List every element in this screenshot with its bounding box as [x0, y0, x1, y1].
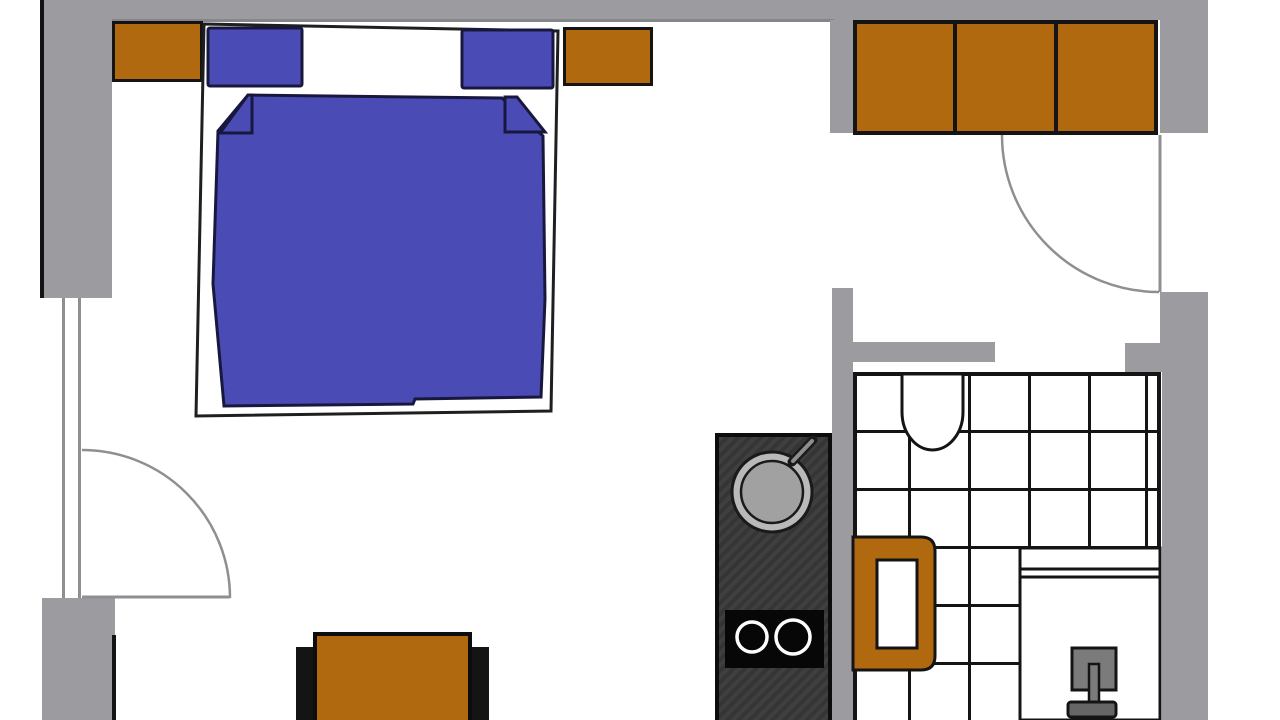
tile-line-horizontal — [857, 604, 1157, 607]
window-pane-line-inner — [78, 298, 81, 598]
cooktop — [725, 610, 824, 668]
tile-line-horizontal — [857, 488, 1157, 491]
window-pane-line-outer — [62, 298, 65, 598]
bathroom-wall-edge-top — [853, 372, 1160, 376]
pillow-left — [208, 28, 302, 86]
floor-plan — [0, 0, 1280, 720]
wall-right-upper — [1160, 0, 1208, 133]
wall-right-lower — [1160, 372, 1208, 720]
sofa-seat — [313, 632, 472, 720]
blanket-fold-left — [220, 95, 252, 133]
bathroom-wall-edge-right — [1157, 372, 1161, 548]
wall-bathroom-top — [832, 342, 995, 362]
wardrobe-door-3 — [1054, 24, 1154, 131]
wall-alcove-left — [830, 20, 853, 133]
bathroom-floor — [853, 372, 1162, 720]
door-swing-arc — [82, 450, 230, 598]
kitchen-counter — [715, 433, 832, 720]
tile-line-horizontal — [857, 662, 1157, 665]
wardrobe — [853, 20, 1158, 135]
wall-left-lower — [42, 598, 115, 720]
wardrobe-door-2 — [953, 24, 1053, 131]
wall-left-upper — [44, 0, 112, 298]
tile-line-horizontal — [857, 430, 1157, 433]
sofa-armrest-right — [470, 647, 489, 720]
bed-blanket — [213, 95, 545, 406]
entrance-door — [1002, 135, 1160, 292]
bed-frame — [196, 24, 558, 416]
wall-right-step — [1125, 343, 1208, 372]
blanket-fold-right — [505, 97, 545, 132]
double-bed — [196, 24, 558, 416]
nightstand-right — [563, 27, 653, 86]
door-swing-arc — [1002, 135, 1159, 292]
wardrobe-door-1 — [857, 24, 953, 131]
interior-door-left — [82, 450, 230, 598]
tile-line-horizontal — [857, 546, 1157, 549]
pillow-right — [462, 30, 553, 88]
nightstand-left — [112, 21, 203, 82]
wall-top — [42, 0, 1208, 20]
wall-left-lower-edge — [112, 635, 116, 720]
